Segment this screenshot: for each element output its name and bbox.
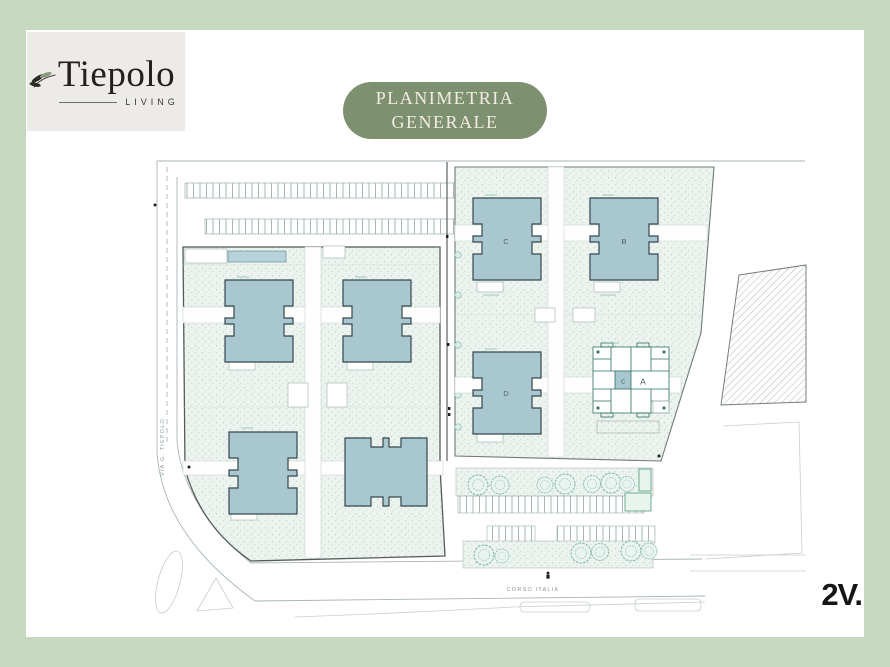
brand-tagline: LIVING	[125, 97, 179, 107]
tree-icon	[491, 476, 509, 494]
building-label-a: A	[640, 376, 646, 386]
badge-line1: PLANIMETRIA	[376, 87, 515, 110]
tree-icon	[495, 549, 509, 563]
tree-icon	[641, 543, 657, 559]
building-label-core: C	[621, 379, 625, 385]
content-panel: Tiepolo LIVING PLANIMETRIA GENERALE	[26, 30, 864, 637]
olive-branch-icon	[29, 57, 59, 91]
building-label-c: C	[503, 237, 509, 246]
logo-card: Tiepolo LIVING	[27, 32, 185, 131]
building-unlabeled-4	[345, 438, 427, 506]
building-label-b: B	[621, 237, 626, 246]
logo-row: Tiepolo	[29, 56, 175, 93]
tree-icon	[584, 476, 601, 493]
site-plan: C B D C A VIA G. TIEPOLO CORSO ITALIA	[145, 155, 807, 625]
badge-line2: GENERALE	[392, 111, 499, 134]
tree-icon	[571, 543, 591, 563]
building-unlabeled-2	[343, 280, 411, 362]
brand-name: Tiepolo	[58, 56, 175, 93]
street-label-corso-italia: CORSO ITALIA	[507, 587, 560, 593]
parking-top	[185, 183, 455, 234]
building-unlabeled-1	[225, 280, 293, 362]
tagline-row: LIVING	[59, 97, 179, 107]
existing-building-hatched	[721, 265, 806, 405]
tree-icon	[621, 541, 641, 561]
tree-icon	[474, 545, 494, 565]
tree-icon	[601, 473, 621, 493]
tree-icon	[620, 477, 635, 492]
street-label-via-tiepolo: VIA G. TIEPOLO	[160, 418, 166, 476]
building-label-d: D	[503, 389, 509, 398]
tree-icon	[592, 544, 609, 561]
tree-icon	[537, 477, 553, 493]
title-badge: PLANIMETRIA GENERALE	[343, 82, 547, 139]
building-unlabeled-3	[229, 432, 297, 514]
tree-icon	[555, 474, 575, 494]
tree-icon	[468, 475, 488, 495]
tagline-rule	[59, 102, 117, 103]
footer-brand: 2V.	[821, 577, 862, 613]
pedestrian-icon	[546, 572, 549, 579]
